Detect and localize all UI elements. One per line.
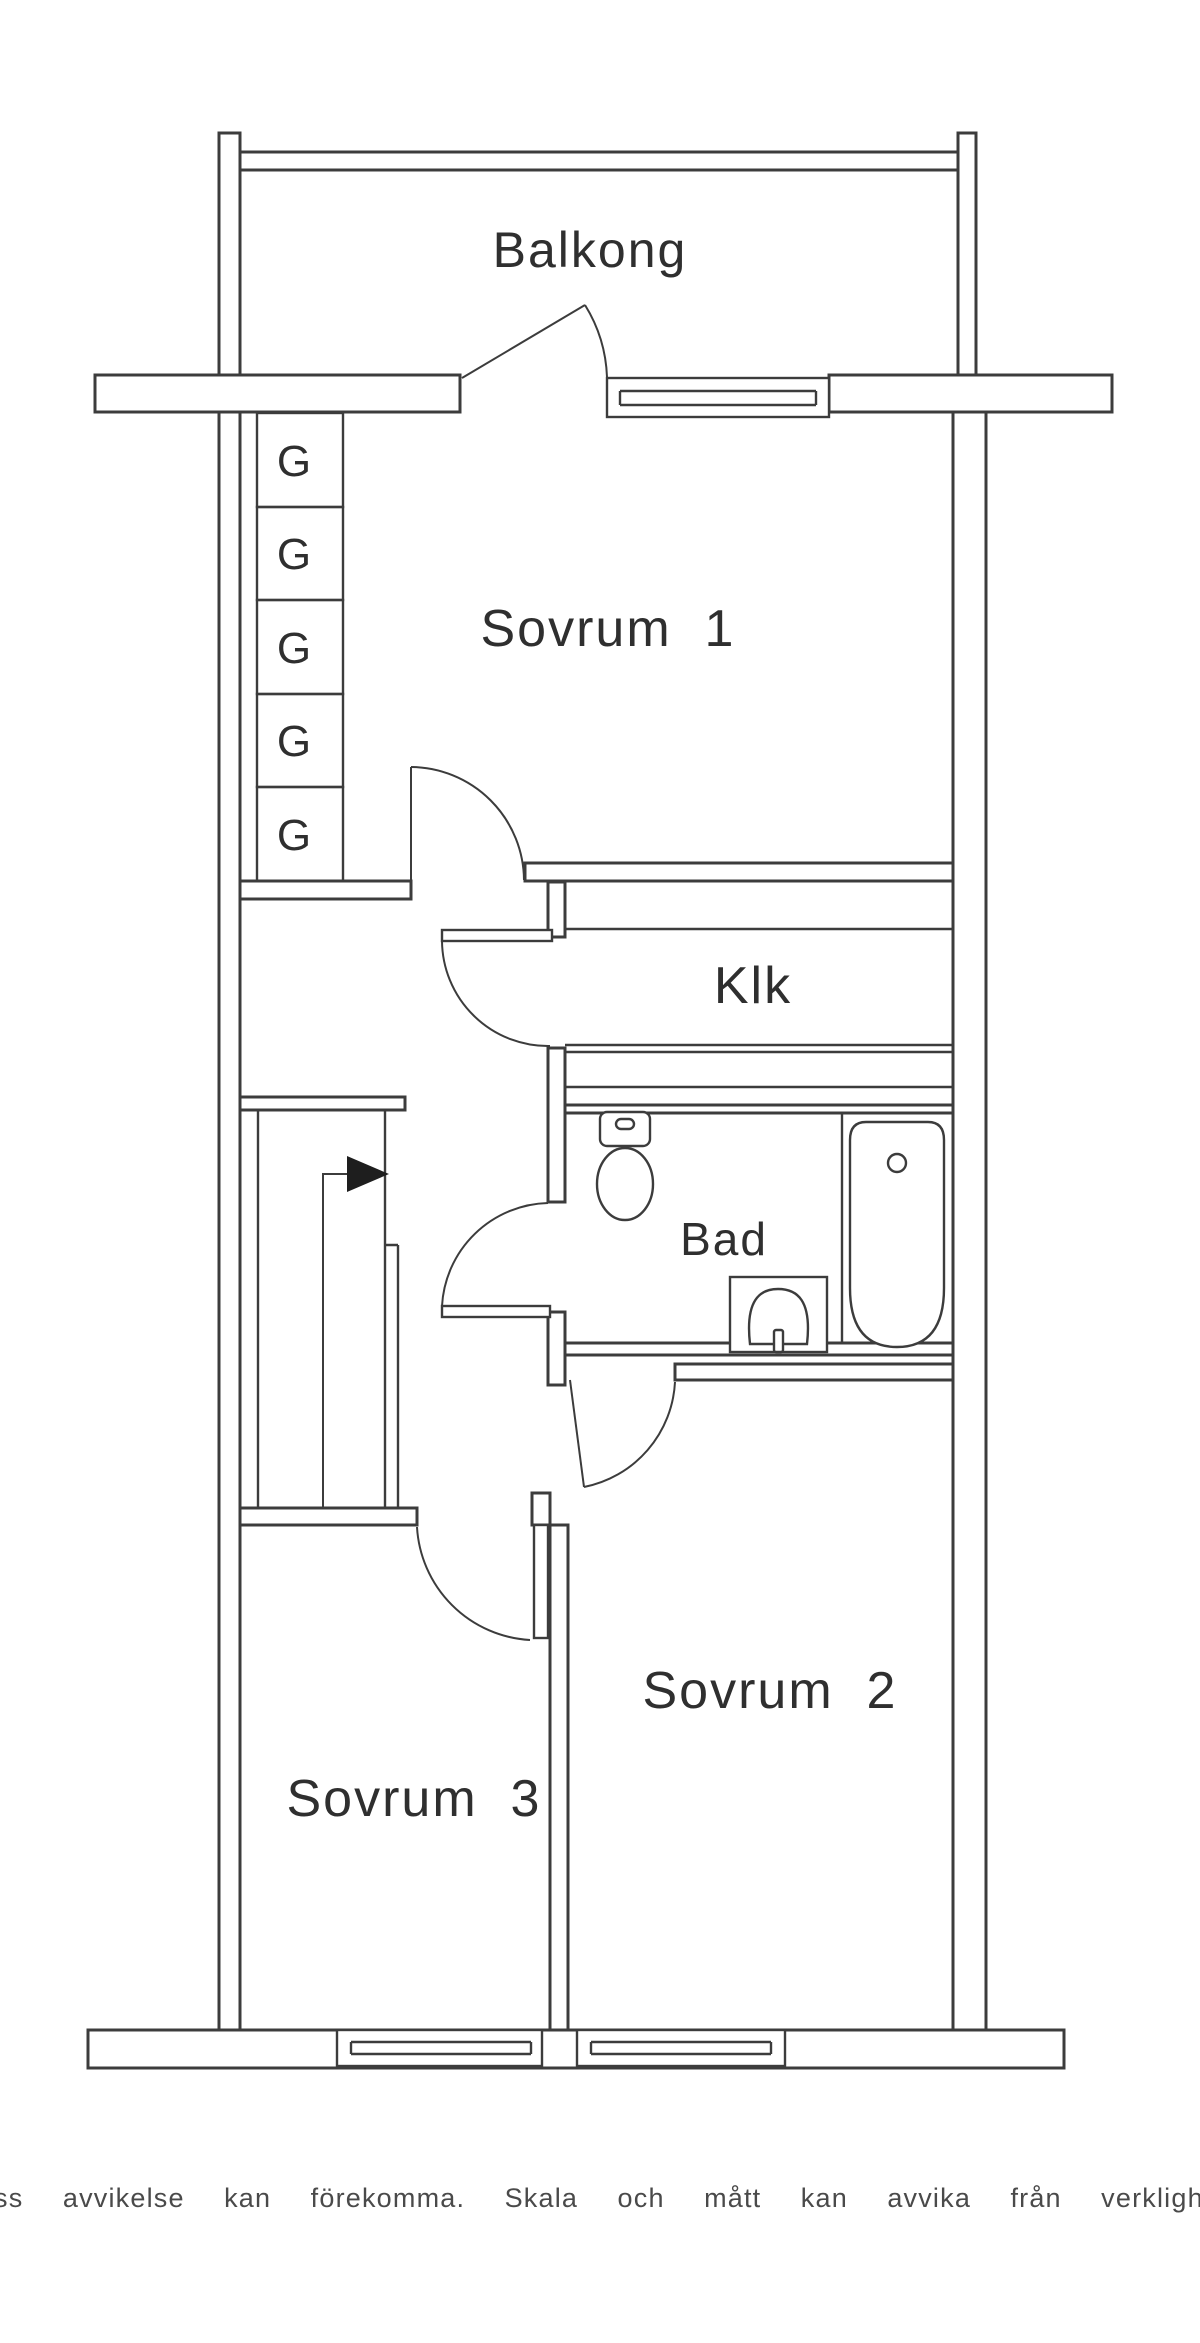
wardrobe-column: G G G G G (257, 413, 343, 881)
closet-shelf-line-bottom (565, 1045, 953, 1052)
stairs-up-arrow-icon (347, 1156, 389, 1192)
bedroom2-door (570, 1380, 675, 1487)
closet-door-leaf (442, 930, 552, 941)
center-wall-segment (548, 1048, 565, 1202)
balcony-railing-left (219, 133, 240, 376)
balcony-railing-top (240, 152, 958, 170)
bedroom1-label: Sovrum 1 (481, 600, 736, 658)
bathtub (842, 1113, 944, 1347)
window-frame (607, 378, 829, 417)
wardrobe-label: G (277, 624, 311, 673)
wardrobe-label: G (277, 811, 311, 860)
balcony-door-arc (585, 305, 607, 377)
floor-plan-page: Balkong G (0, 0, 1200, 2343)
wardrobe-label: G (277, 437, 311, 486)
bathroom-door-arc (442, 1203, 548, 1306)
toilet (597, 1112, 653, 1220)
closet-door-arc (442, 941, 550, 1046)
bathroom-door (442, 1203, 550, 1317)
bedroom3-door-arc (417, 1527, 530, 1640)
bedroom3: Sovrum 3 (240, 1508, 548, 1828)
center-wall-segment (548, 882, 565, 937)
bedroom1-door (411, 767, 524, 881)
wardrobe-label: G (277, 717, 311, 766)
exterior-wall-left (219, 412, 240, 2030)
bedroom3-label: Sovrum 3 (287, 1770, 542, 1828)
exterior-wall-bottom (88, 2030, 1064, 2068)
bathroom-door-leaf (442, 1306, 550, 1317)
bedroom-divider-wall (550, 1525, 568, 2030)
stairs-direction-line (323, 1174, 347, 1508)
balcony-door-leaf (462, 305, 585, 378)
exterior-wall-right (953, 412, 986, 2030)
disclaimer-text: Viss avvikelse kan förekomma. Skala och … (0, 2183, 1200, 2213)
door-post-stub (532, 1493, 550, 1525)
floor-plan-svg: Balkong G (0, 0, 1200, 2343)
stairs-top-wall (240, 1097, 405, 1110)
bedroom2-window (577, 2030, 785, 2066)
bedroom3-door (417, 1525, 548, 1640)
window-frame (577, 2030, 785, 2066)
closet: Klk (442, 929, 953, 1087)
bedroom1-door-arc (411, 767, 524, 880)
bedroom2: Sovrum 2 (570, 1364, 953, 1720)
top-wall-right-segment (829, 375, 1112, 412)
bathtub-drain (888, 1154, 906, 1172)
window-frame (337, 2030, 542, 2066)
balcony-railing-right (958, 133, 976, 376)
sink-tap (774, 1330, 783, 1352)
bedroom3-north-wall (240, 1508, 417, 1525)
bedroom1-window (607, 378, 829, 417)
bedroom2-north-wall (675, 1364, 953, 1380)
closet-door (442, 930, 552, 1046)
bedroom3-door-leaf (534, 1525, 548, 1638)
bedroom2-door-arc (584, 1382, 675, 1487)
bedroom1: Sovrum 1 (240, 600, 953, 899)
bathroom: Bad (442, 1105, 953, 1355)
stairs (240, 1097, 405, 1508)
sink (730, 1277, 827, 1352)
closet-label: Klk (714, 957, 792, 1015)
hall-north-wall (240, 881, 411, 899)
balcony: Balkong (219, 133, 976, 376)
top-wall-left-segment (95, 375, 460, 412)
balcony-door (462, 305, 607, 378)
bedroom1-south-wall (525, 863, 953, 881)
center-wall-segment (548, 1312, 565, 1385)
bathroom-label: Bad (680, 1213, 768, 1265)
balcony-label: Balkong (493, 222, 688, 278)
toilet-flush-button (616, 1119, 634, 1129)
bedroom3-window (337, 2030, 542, 2066)
toilet-bowl (597, 1148, 653, 1220)
bedroom2-door-leaf (570, 1380, 584, 1487)
bedroom2-label: Sovrum 2 (643, 1662, 898, 1720)
wardrobe-label: G (277, 530, 311, 579)
